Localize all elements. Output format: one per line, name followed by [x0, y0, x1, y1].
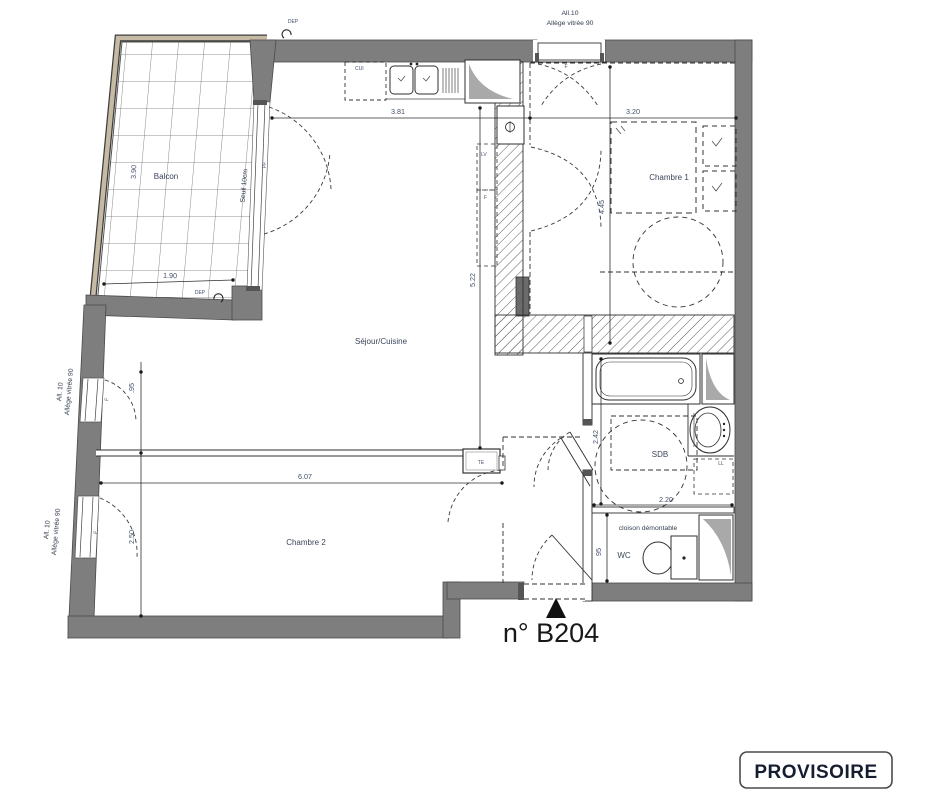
dim-balcony-width: 1.90: [163, 271, 177, 280]
window-left-upper-type: Allège vitrée 90: [64, 368, 75, 416]
window-top-swing: [538, 64, 598, 106]
window-left-upper: [80, 378, 104, 422]
window-left-upper-ref: All. 10: [56, 382, 65, 402]
dim-living-depth: 5.22: [468, 273, 477, 287]
partition-living-bedroom2-fill: [96, 450, 463, 456]
kitchen-zone-label: CUI: [355, 66, 364, 72]
wall-right: [735, 40, 752, 601]
bed-outline: [611, 122, 696, 213]
pillow-outline: [703, 171, 736, 211]
dim-balcony-depth: 3.90: [129, 165, 138, 179]
window-left-upper-leaf: F: [104, 398, 110, 402]
wall-balcony-step: [232, 286, 262, 320]
window-left-lower-type: Allège vitrée 90: [51, 508, 62, 556]
wall-top-right-segment: [605, 40, 752, 62]
partition-note-label: cloison démontable: [619, 525, 678, 532]
bedroom1-door-swing: [531, 150, 601, 231]
window-top-frame: [538, 43, 601, 60]
partition-stub-hall: [499, 456, 505, 470]
kitchen: [345, 60, 520, 266]
window-top-type: Allège vitrée 90: [547, 20, 594, 27]
balcony-door-swing: [264, 153, 330, 234]
bathroom-door-swing: [548, 432, 570, 470]
wall-bottom-middle: [447, 582, 524, 599]
toilet-flush-icon: [682, 556, 685, 559]
bedroom1-label: Chambre 1: [649, 173, 689, 182]
bathroom-turning-circle: [595, 420, 687, 512]
bedroom2-door-swing: [448, 470, 502, 522]
vent-hook-icon: [282, 30, 291, 38]
partition-through-soffit: [584, 316, 592, 352]
stamp-text: PROVISOIRE: [754, 762, 877, 783]
bedroom1-turning-circle: [633, 217, 723, 307]
balcony-door-swing: [269, 107, 331, 189]
window-left-lower: [75, 496, 99, 558]
wc-label: WC: [617, 551, 631, 560]
drainer-stripes: [443, 68, 458, 93]
hall-door-swing: [534, 438, 561, 487]
floor-plan-page: DEP DEP All.10 Allège vitrée 90 F CUI LV…: [0, 0, 944, 800]
wall-bottom-right: [585, 583, 752, 601]
bathroom-door-leaf: [570, 432, 593, 470]
entry-door-swing: [532, 535, 552, 580]
electrical-panel-label: TE: [478, 460, 485, 466]
dim-bathroom-width: 2.20: [659, 495, 673, 504]
window-top-leaf: F: [564, 64, 567, 70]
washing-machine-slot: [694, 459, 733, 494]
balcony-label: Balcon: [154, 172, 178, 181]
fridge-label: F: [484, 195, 487, 201]
balcony: [92, 38, 267, 313]
dep-balcony-label: DEP: [195, 290, 206, 296]
duct-access-box: [497, 106, 524, 144]
hall-door-leaf: [561, 438, 590, 486]
toilet-bowl: [643, 542, 673, 574]
kitchen-zone-outline: [345, 62, 386, 100]
dim-living-width: 3.81: [391, 107, 405, 116]
bedroom1-door-swing: [531, 147, 601, 228]
entry-door-jamb-left: [518, 583, 524, 600]
faucet-icon: [410, 63, 413, 66]
unit-number: n° B204: [503, 618, 599, 648]
dim-bathroom-depth: 2.42: [591, 430, 600, 444]
pillow-outline: [703, 126, 736, 166]
wall-balcony-door-pier: [250, 40, 276, 102]
dim-wc-width: 95: [594, 548, 603, 556]
bedroom2-label: Chambre 2: [286, 538, 326, 547]
dim-bedroom2-width: 6.07: [298, 472, 312, 481]
dishwasher-label: LV: [481, 152, 487, 158]
technical-ducts: [495, 62, 734, 355]
dim-facade-offset: .95: [127, 383, 136, 393]
balcony-tiled-area: [97, 42, 265, 312]
dim-bedroom1-width: 3.20: [626, 107, 640, 116]
entry-opening: [524, 583, 585, 601]
floor-plan-drawing: DEP DEP All.10 Allège vitrée 90 F CUI LV…: [0, 0, 944, 800]
wall-left-slanted: [68, 305, 106, 638]
window-top-ref: All.10: [561, 10, 578, 17]
dep-top-label: DEP: [288, 19, 299, 25]
window-left-lower-swing: [100, 498, 137, 557]
dim-bedroom2-depth: 2.50: [127, 530, 136, 544]
bathroom-label: SDB: [652, 450, 668, 459]
dim-bedroom1-depth: 4.45: [597, 200, 606, 214]
washing-machine-label: LL: [718, 461, 724, 467]
window-left-lower-ref: All. 10: [43, 520, 52, 540]
window-left-lower-leaf: F: [93, 531, 99, 535]
balcony-door-label: PF: [262, 161, 269, 168]
window-top-swing: [541, 64, 601, 106]
bathroom: [592, 354, 734, 512]
living-label: Séjour/Cuisine: [355, 337, 408, 346]
bathtub-enclosure: [592, 354, 700, 404]
wall-bottom-left: [68, 616, 448, 638]
faucet-icon: [416, 63, 419, 66]
demountable-partition: [592, 507, 734, 513]
wall-top-left-segment: [268, 40, 537, 62]
provisional-stamp: PROVISOIRE: [740, 752, 892, 788]
soffit-band: [495, 315, 734, 353]
bathroom-clearance-box: [611, 416, 697, 470]
